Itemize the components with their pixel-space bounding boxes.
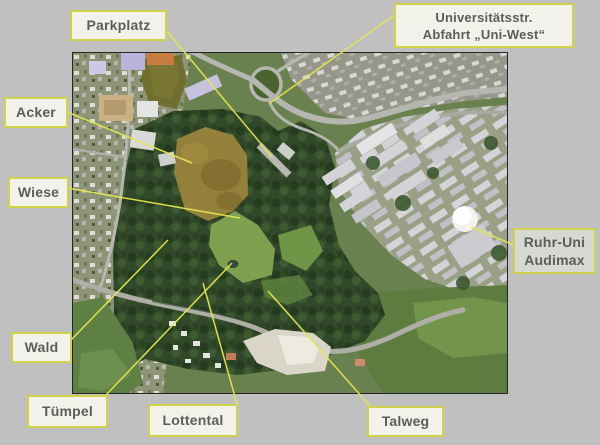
map-label-ruhr-uni-audimax: Ruhr-Uni Audimax (513, 228, 596, 274)
label-text: Talweg (382, 413, 430, 430)
orange-roof-building (147, 53, 174, 65)
pond (228, 260, 239, 268)
label-text-line1: Ruhr-Uni (524, 233, 585, 251)
label-text-line2: Abfahrt „Uni-West“ (423, 26, 546, 43)
map-label-wiese: Wiese (8, 177, 69, 208)
map-label-wald: Wald (11, 332, 72, 363)
label-text: Acker (16, 104, 56, 121)
map-label-parkplatz: Parkplatz (70, 10, 167, 41)
acker-brown-field (174, 127, 248, 221)
label-text-line2: Audimax (524, 251, 585, 269)
label-text: Wiese (18, 184, 59, 201)
map-label-universitaetsstr: Universitätsstr. Abfahrt „Uni-West“ (394, 3, 574, 48)
label-text: Lottental (163, 412, 224, 429)
label-text: Parkplatz (86, 17, 150, 34)
label-text: Wald (25, 339, 59, 356)
label-text-line1: Universitätsstr. (435, 9, 532, 26)
map-label-acker: Acker (4, 97, 68, 128)
aerial-map-canvas (73, 53, 507, 393)
map-label-talweg: Talweg (367, 406, 444, 437)
map-label-lottental: Lottental (148, 404, 238, 437)
screenshot-root: Parkplatz Universitätsstr. Abfahrt „Uni-… (0, 0, 600, 445)
map-label-tuempel: Tümpel (27, 395, 108, 428)
label-text: Tümpel (42, 403, 93, 420)
aerial-map-image (72, 52, 508, 394)
